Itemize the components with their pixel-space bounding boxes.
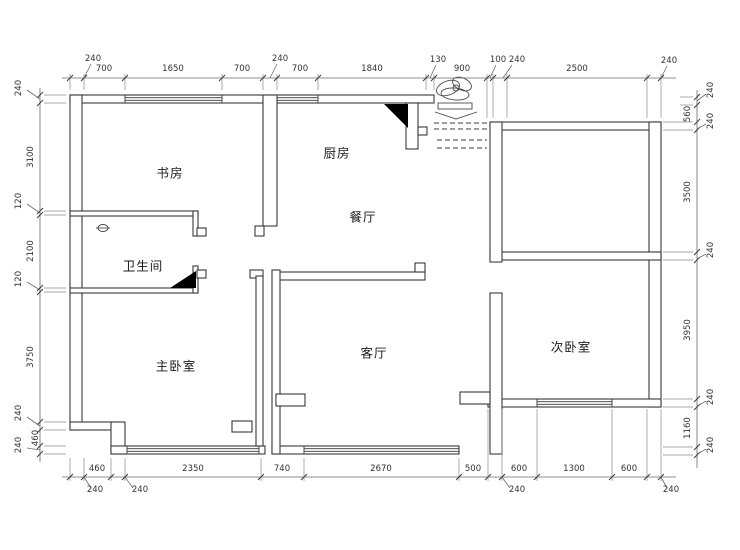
dim-right: 560 bbox=[683, 106, 693, 122]
dim-top: 240 bbox=[661, 56, 677, 66]
wall bbox=[70, 211, 198, 216]
filled-triangle-icon bbox=[170, 271, 196, 288]
dim-right: 240 bbox=[706, 437, 716, 453]
dim-top: 2500 bbox=[566, 64, 588, 74]
dim-top: 240 bbox=[272, 54, 288, 64]
dim-right: 3950 bbox=[683, 319, 693, 341]
dim-right: 240 bbox=[706, 389, 716, 405]
dim-bottom: 600 bbox=[621, 464, 637, 474]
wall bbox=[197, 228, 206, 236]
wall bbox=[272, 270, 280, 454]
wall bbox=[277, 272, 425, 280]
dim-top: 900 bbox=[454, 64, 470, 74]
dim-top: 700 bbox=[96, 64, 112, 74]
room-label-study: 书房 bbox=[156, 163, 183, 182]
room-label-master-bedroom: 主卧室 bbox=[156, 356, 197, 375]
dim-right: 3500 bbox=[683, 181, 693, 203]
dim-bottom: 240 bbox=[132, 485, 148, 495]
wall bbox=[70, 422, 117, 430]
dim-bottom: 500 bbox=[465, 464, 481, 474]
wall bbox=[418, 127, 427, 135]
phi-drain-icon bbox=[96, 225, 110, 232]
wall bbox=[415, 263, 425, 272]
wall bbox=[197, 270, 206, 278]
dim-top: 240 bbox=[85, 54, 101, 64]
dim-bottom: 2670 bbox=[370, 464, 392, 474]
wall bbox=[649, 252, 661, 407]
dim-bottom: 460 bbox=[89, 464, 105, 474]
wall bbox=[263, 95, 277, 226]
dim-top: 130 bbox=[430, 55, 446, 65]
dim-bottom: 240 bbox=[87, 485, 103, 495]
dim-left: 3750 bbox=[26, 346, 36, 368]
filled-triangle-icon bbox=[384, 104, 408, 128]
wall bbox=[490, 252, 661, 260]
wall bbox=[490, 122, 502, 262]
wall bbox=[70, 95, 82, 430]
room-label-kitchen: 厨房 bbox=[323, 143, 350, 162]
dim-left: 120 bbox=[14, 193, 24, 209]
door-jamb bbox=[460, 392, 490, 404]
wall bbox=[272, 446, 459, 454]
dim-bottom: 240 bbox=[663, 485, 679, 495]
dim-top: 100 bbox=[490, 55, 506, 65]
dim-left: 460 bbox=[31, 430, 41, 446]
room-label-bathroom: 卫生间 bbox=[123, 256, 164, 275]
room-label-dining: 餐厅 bbox=[349, 207, 376, 226]
dim-left: 120 bbox=[14, 271, 24, 287]
dim-top: 1650 bbox=[162, 64, 184, 74]
room-label-living-room: 客厅 bbox=[360, 343, 387, 362]
dim-bottom: 240 bbox=[509, 485, 525, 495]
dim-top: 700 bbox=[292, 64, 308, 74]
door-jamb bbox=[232, 421, 252, 432]
dim-left: 240 bbox=[14, 405, 24, 421]
room-label-second-bedroom: 次卧室 bbox=[551, 337, 592, 356]
dim-top: 240 bbox=[509, 55, 525, 65]
door-markers bbox=[170, 104, 408, 288]
dim-right: 240 bbox=[706, 113, 716, 129]
wall bbox=[488, 399, 661, 407]
plant-sketch-icon bbox=[434, 74, 477, 119]
dim-left: 3100 bbox=[26, 146, 36, 168]
floor-plan: 书房 厨房 餐厅 卫生间 主卧室 客厅 次卧室 240 700 1650 700… bbox=[0, 0, 740, 550]
wall bbox=[111, 446, 265, 454]
wall bbox=[490, 122, 661, 130]
wall bbox=[256, 276, 263, 446]
dim-bottom: 1300 bbox=[563, 464, 585, 474]
dim-bottom: 600 bbox=[511, 464, 527, 474]
dim-right: 240 bbox=[706, 82, 716, 98]
dim-right: 1160 bbox=[683, 417, 693, 439]
wall bbox=[255, 226, 264, 236]
wall bbox=[490, 293, 502, 454]
dim-top: 700 bbox=[234, 64, 250, 74]
dim-left: 2100 bbox=[26, 240, 36, 262]
entry-door-dashed bbox=[434, 123, 490, 148]
dim-bottom: 2350 bbox=[182, 464, 204, 474]
wall bbox=[649, 122, 661, 260]
dim-left: 240 bbox=[14, 80, 24, 96]
dim-left: 240 bbox=[14, 437, 24, 453]
wall bbox=[70, 288, 198, 293]
dim-top: 1840 bbox=[361, 64, 383, 74]
interior-walls bbox=[70, 95, 490, 454]
dim-bottom: 740 bbox=[274, 464, 290, 474]
door-jamb bbox=[276, 394, 305, 406]
dim-right: 240 bbox=[706, 242, 716, 258]
